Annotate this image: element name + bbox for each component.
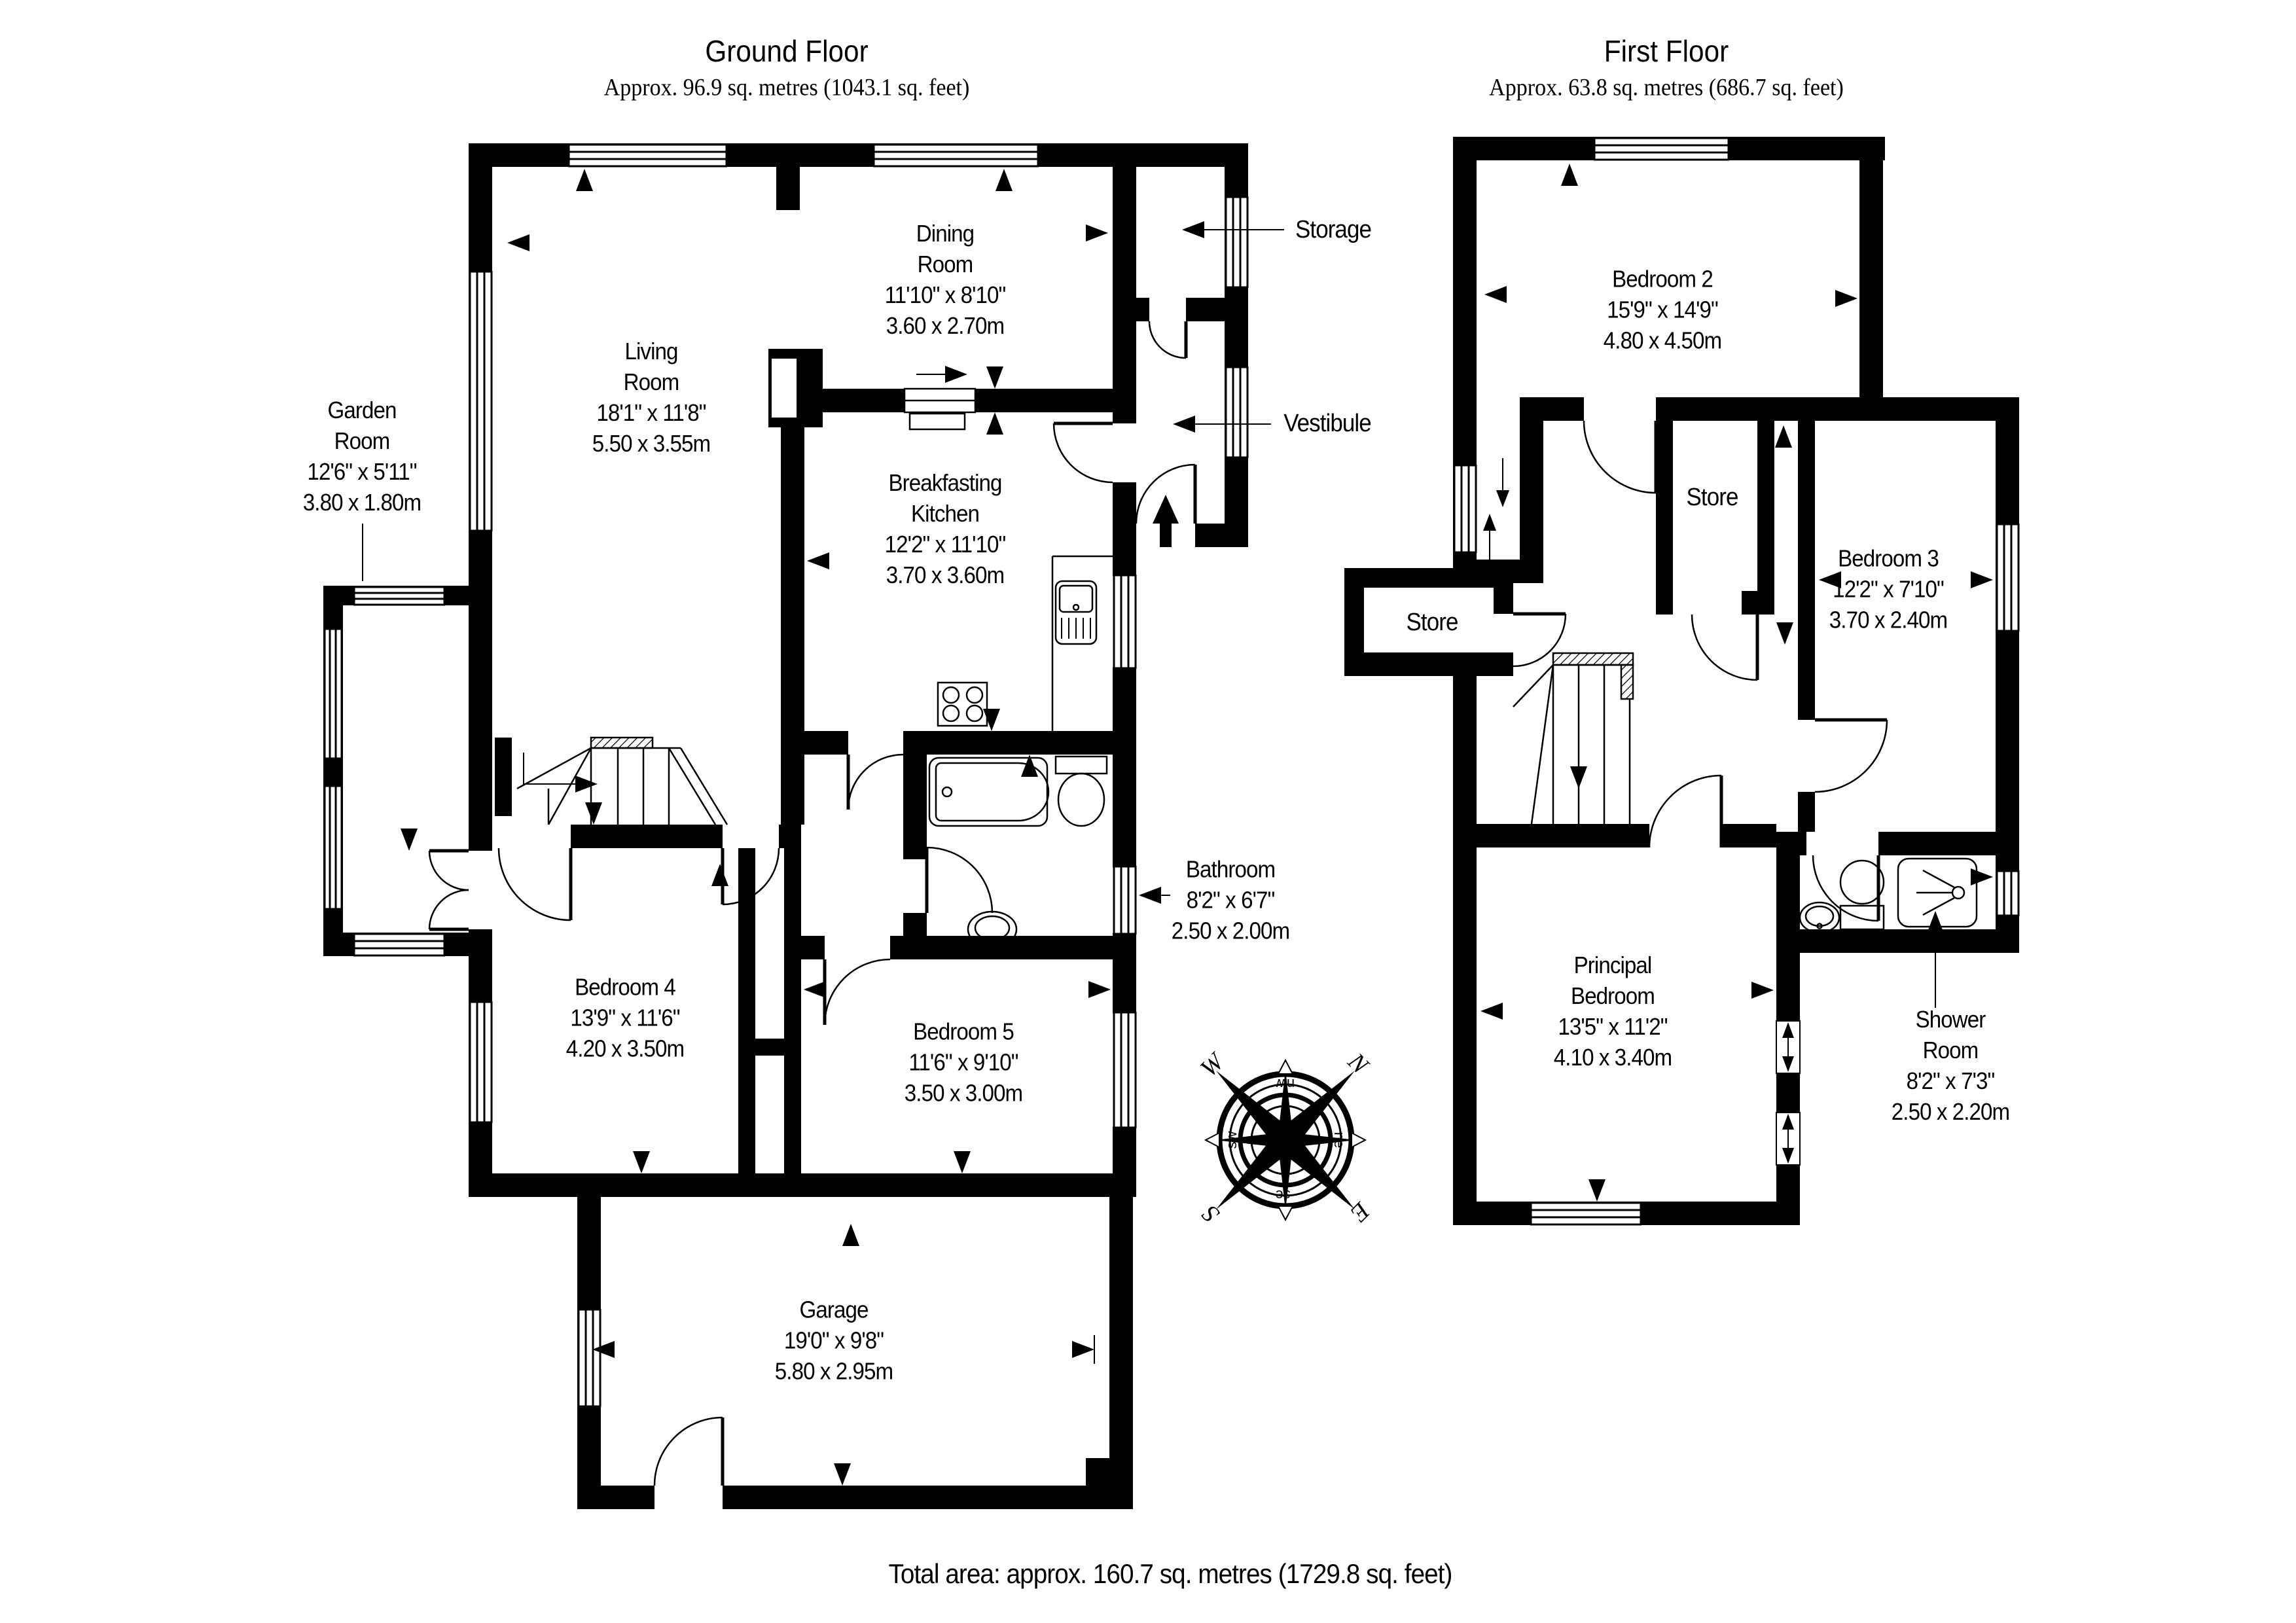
compass-sw-label: sw bbox=[1223, 1132, 1240, 1149]
room-label-bedroom-5: Bedroom 511'6" x 9'10" 3.50 x 3.00m bbox=[905, 1016, 1022, 1109]
room-label-bedroom-4: Bedroom 413'9" x 11'6" 4.20 x 3.50m bbox=[566, 972, 684, 1064]
first-floor-subtitle: Approx. 63.8 sq. metres (686.7 sq. feet) bbox=[1489, 76, 1844, 100]
ground-floor-subtitle: Approx. 96.9 sq. metres (1043.1 sq. feet… bbox=[604, 76, 970, 100]
room-label-store-left: Store bbox=[1407, 609, 1458, 635]
compass-se-label: se bbox=[1275, 1186, 1290, 1204]
room-label-store-center: Store bbox=[1687, 484, 1738, 510]
room-label-dining-room: DiningRoom 11'10" x 8'10"3.60 x 2.70m bbox=[885, 218, 1006, 341]
floorplan-drawing bbox=[0, 0, 2296, 1623]
room-label-bedroom-2: Bedroom 215'9" x 14'9" 4.80 x 4.50m bbox=[1604, 264, 1721, 356]
total-area-note: Total area: approx. 160.7 sq. metres (17… bbox=[888, 1560, 1452, 1588]
room-label-bedroom-3: Bedroom 312'2" x 7'10" 3.70 x 2.40m bbox=[1829, 543, 1947, 635]
ground-floor-title: Ground Floor bbox=[705, 36, 868, 66]
room-label-garden-room: GardenRoom 12'6" x 5'11"3.80 x 1.80m bbox=[303, 395, 421, 518]
room-label-garage: Garage19'0" x 9'8" 5.80 x 2.95m bbox=[775, 1294, 893, 1387]
floorplan: Ground Floor Approx. 96.9 sq. metres (10… bbox=[0, 0, 2296, 1623]
room-label-living-room: LivingRoom 18'1" x 11'8"5.50 x 3.55m bbox=[592, 336, 710, 459]
first-floor-title: First Floor bbox=[1604, 36, 1729, 66]
room-label-shower-room: ShowerRoom 8'2" x 7'3"2.50 x 2.20m bbox=[1892, 1004, 2009, 1127]
room-label-vestibule: Vestibule bbox=[1283, 410, 1371, 437]
room-label-principal-bedroom: PrincipalBedroom 13'5" x 11'2"4.10 x 3.4… bbox=[1554, 950, 1672, 1073]
compass-ne-label: ne bbox=[1331, 1132, 1348, 1148]
room-label-storage: Storage bbox=[1295, 217, 1371, 243]
room-label-breakfasting-kitchen: BreakfastingKitchen 12'2" x 11'10"3.70 x… bbox=[885, 467, 1006, 590]
ground-floor-stairs bbox=[495, 738, 727, 825]
room-label-bathroom: Bathroom8'2" x 6'7" 2.50 x 2.00m bbox=[1172, 854, 1289, 946]
first-floor-stairs bbox=[1513, 653, 1633, 824]
compass-nw-label: nw bbox=[1276, 1075, 1295, 1092]
